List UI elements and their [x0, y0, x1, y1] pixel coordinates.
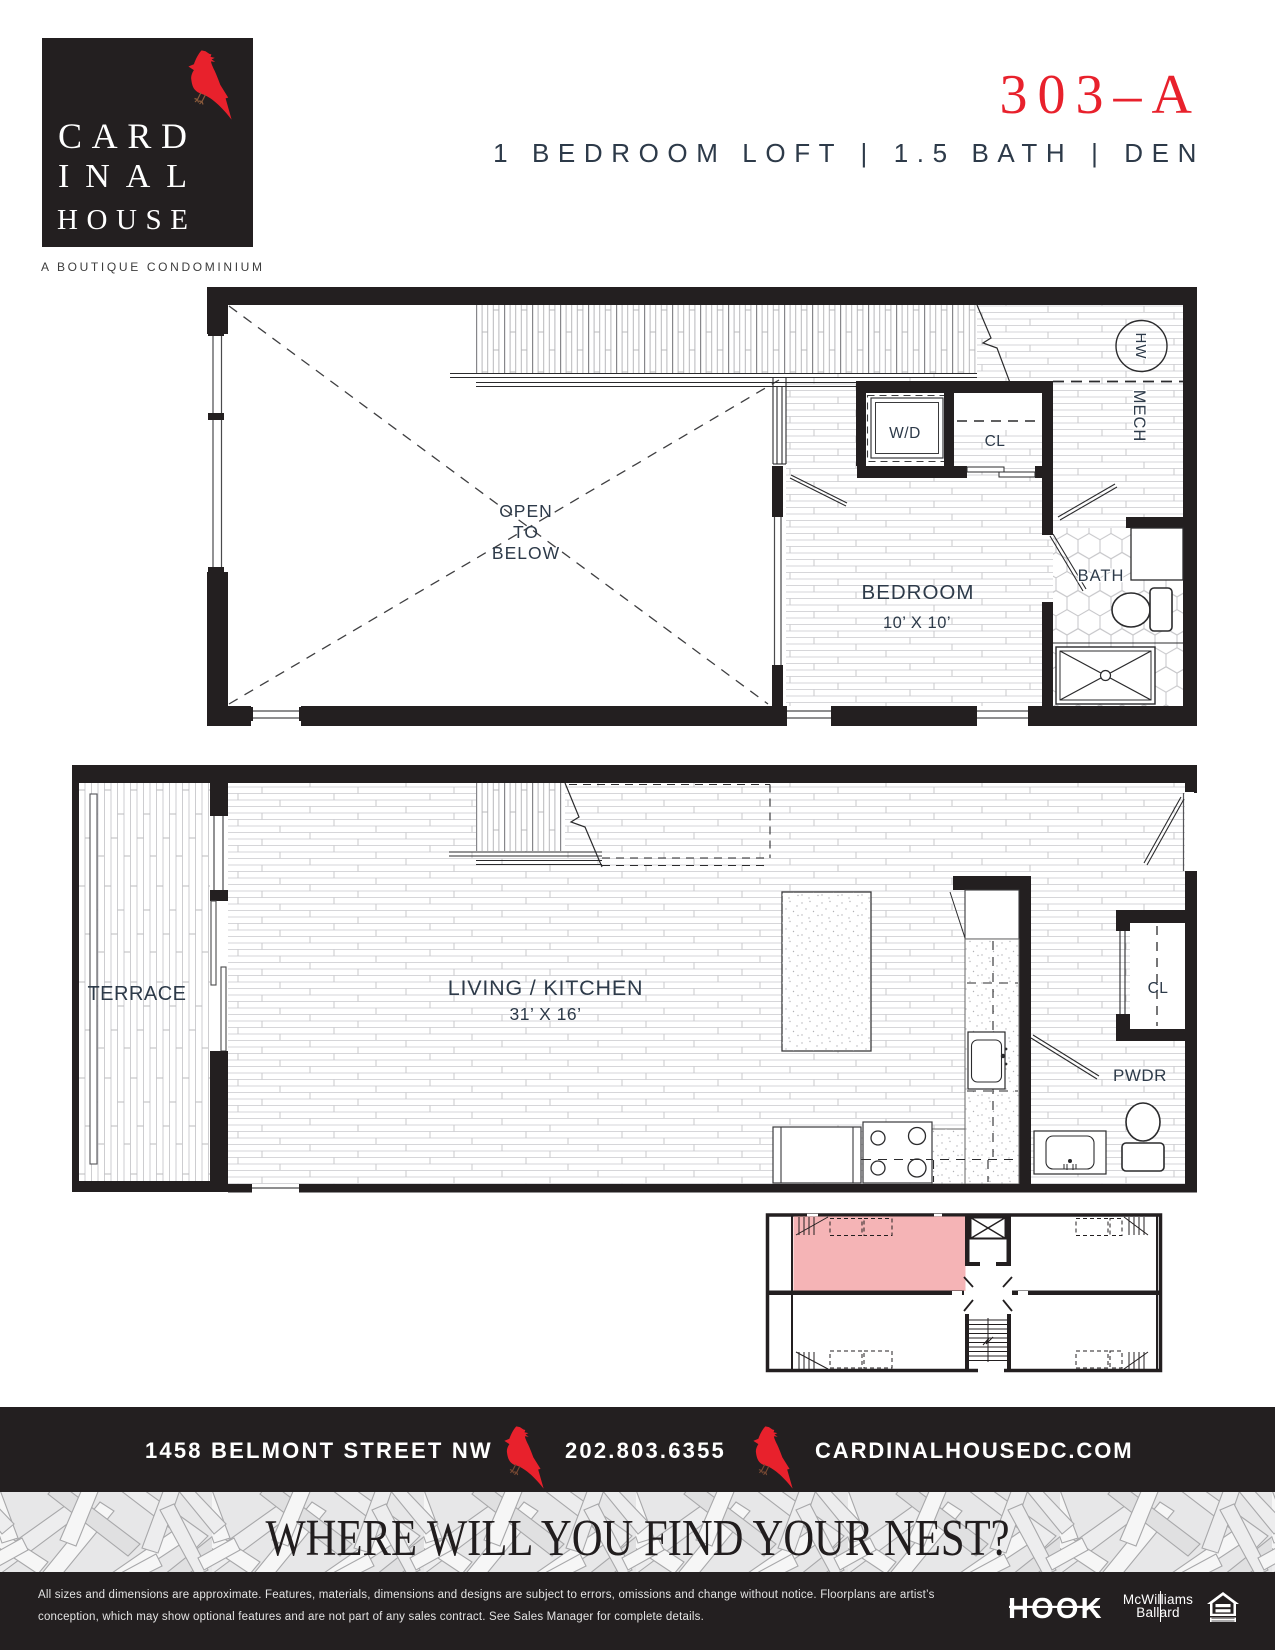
- svg-text:LIVING / KITCHEN: LIVING / KITCHEN: [448, 976, 644, 1000]
- svg-text:BEDROOM: BEDROOM: [862, 581, 975, 604]
- svg-text:31’ X 16’: 31’ X 16’: [510, 1004, 582, 1024]
- svg-text:BELOW: BELOW: [492, 543, 560, 563]
- svg-text:MECH: MECH: [1130, 390, 1148, 443]
- svg-text:OPEN: OPEN: [499, 501, 553, 521]
- svg-text:BATH: BATH: [1078, 567, 1125, 585]
- svg-text:10’ X 10’: 10’ X 10’: [883, 614, 951, 632]
- svg-text:HW: HW: [1132, 333, 1149, 360]
- svg-text:CL: CL: [985, 433, 1006, 450]
- svg-text:W/D: W/D: [889, 425, 921, 442]
- svg-text:TERRACE: TERRACE: [87, 983, 186, 1005]
- svg-text:TO: TO: [513, 522, 539, 542]
- svg-text:CL: CL: [1148, 980, 1169, 997]
- svg-text:PWDR: PWDR: [1113, 1066, 1167, 1085]
